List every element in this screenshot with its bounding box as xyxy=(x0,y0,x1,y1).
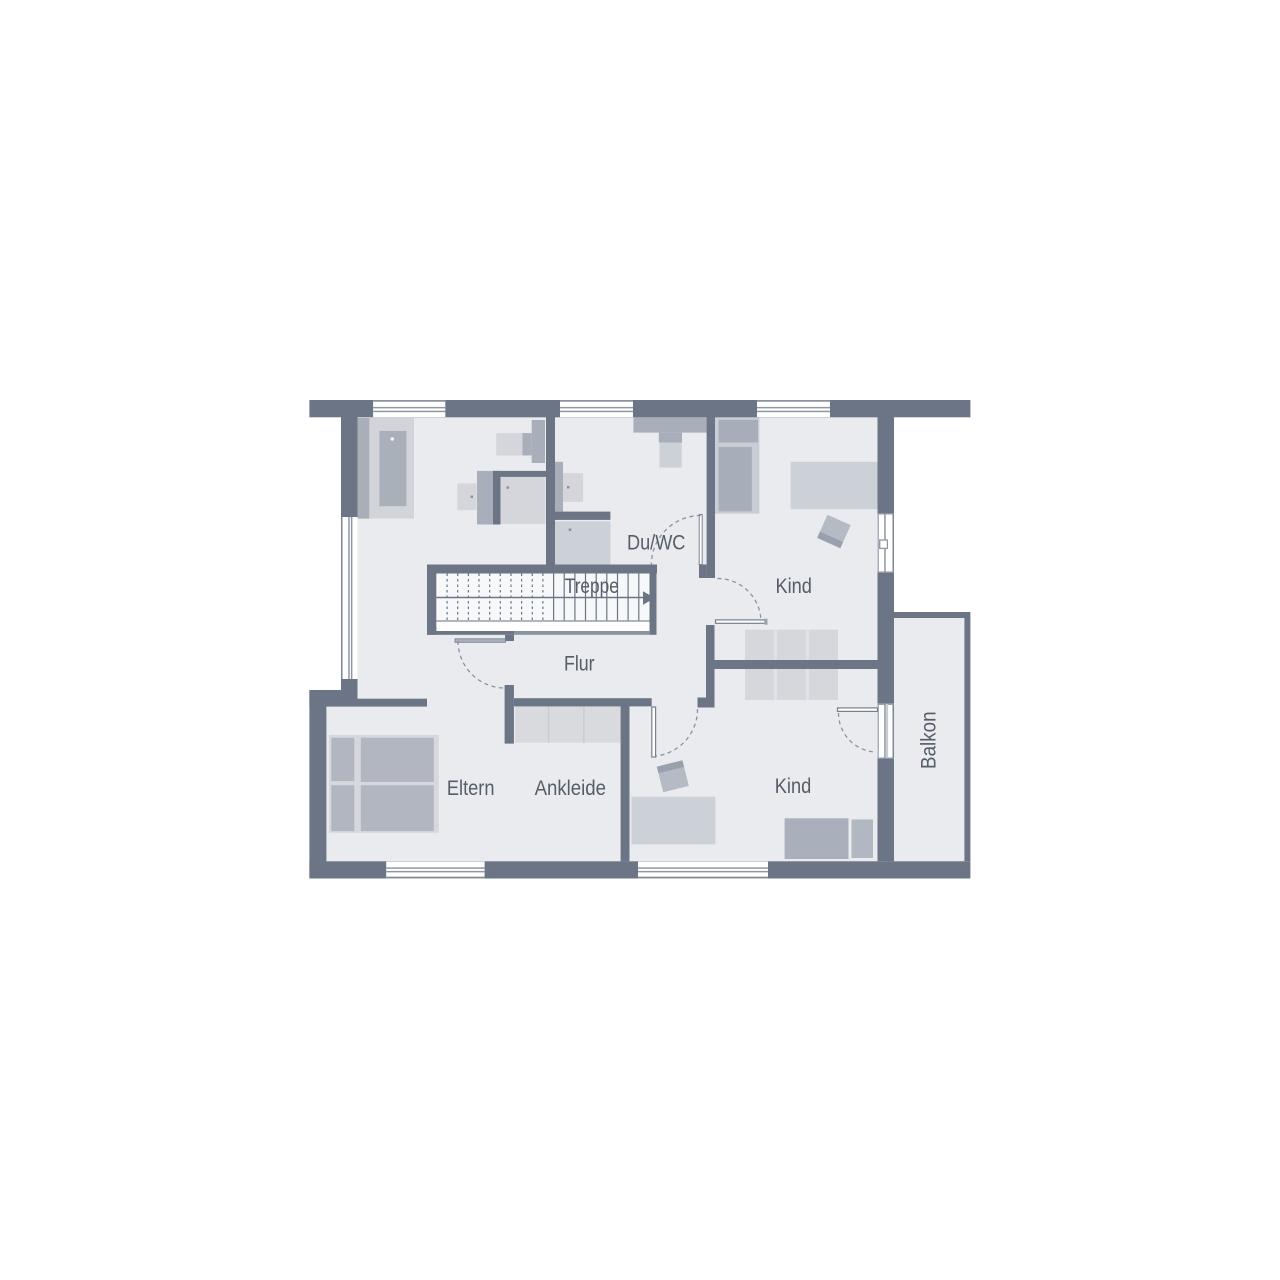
svg-text:Flur: Flur xyxy=(564,651,595,675)
svg-text:Eltern: Eltern xyxy=(447,776,495,800)
svg-text:Ankleide: Ankleide xyxy=(535,776,606,800)
svg-text:Balkon: Balkon xyxy=(917,711,941,769)
svg-text:Kind: Kind xyxy=(775,774,812,798)
svg-text:Treppe: Treppe xyxy=(565,574,619,598)
svg-text:Du/WC: Du/WC xyxy=(627,531,685,555)
svg-text:Kind: Kind xyxy=(775,574,812,598)
